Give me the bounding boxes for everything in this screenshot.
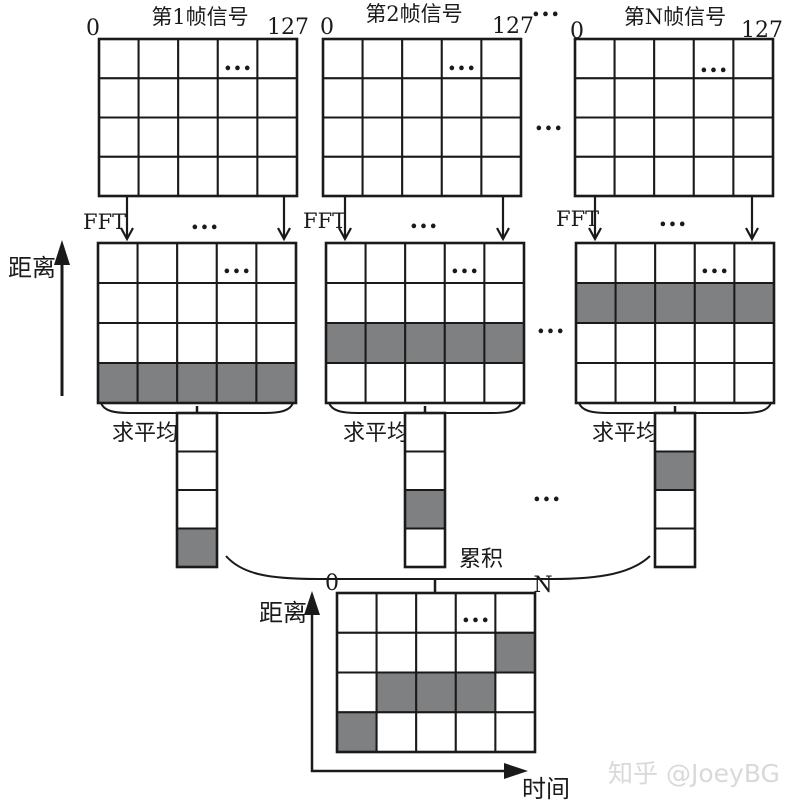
grid-cell: [405, 529, 445, 568]
grid-cell: [323, 157, 363, 196]
range-grid-n: [576, 243, 774, 403]
frame-2-title: 第2帧信号: [365, 2, 462, 26]
grid-cell: [616, 323, 656, 363]
grid-cell: [326, 283, 366, 323]
grid-cell: [366, 243, 406, 283]
grid-cell: [366, 363, 406, 403]
accumulate-label: 累积: [459, 547, 503, 572]
grid-cell: [377, 593, 417, 633]
grid-cell: [733, 39, 773, 78]
grid-cell: [377, 712, 417, 752]
grid-cell: [178, 157, 218, 196]
grid-cell: [366, 283, 406, 323]
grid-cell: [484, 283, 524, 323]
grid-cell: [257, 39, 297, 78]
time-axis-label: 时间: [522, 775, 570, 803]
frame-2-right-tick: 127: [492, 14, 534, 39]
grid-cell: [99, 39, 139, 78]
grid-cell: [217, 363, 257, 403]
grid-cell: [363, 118, 403, 157]
grid-cell: [178, 78, 218, 117]
range-grid-1: [98, 243, 296, 403]
grid-cell: [495, 673, 535, 713]
grid-cell: [366, 323, 406, 363]
ellipsis-frames-top: ...: [531, 0, 560, 22]
avg-vector-n: [655, 413, 695, 567]
range-axis-label-bottom: 距离: [259, 599, 307, 627]
grid-cell: [218, 157, 258, 196]
grid-cell: [377, 633, 417, 673]
grid-cell: [445, 283, 485, 323]
grid-cell: [257, 118, 297, 157]
grid-cell: [217, 283, 257, 323]
grid-cell: [442, 118, 482, 157]
signal-grid-1: [99, 39, 297, 196]
grid-cell: [98, 243, 138, 283]
grid-cell: [695, 283, 735, 323]
avg-vector-2: [405, 413, 445, 567]
grid-cell: [615, 157, 655, 196]
grid-cell: [695, 363, 735, 403]
grid-cell: [177, 452, 217, 491]
grid-cell: [655, 490, 695, 529]
grid-cell: [445, 323, 485, 363]
grid-cell: [139, 39, 179, 78]
frame-1-title: 第1帧信号: [151, 5, 248, 29]
grid-cell: [138, 323, 178, 363]
frame-1-right-tick: 127: [267, 15, 309, 40]
grid-cell: [405, 243, 445, 283]
ellipsis-range-2: ...: [450, 250, 479, 279]
avg-label-2: 求平均: [343, 421, 409, 446]
signal-grid-n: [575, 39, 773, 196]
grid-cell: [654, 78, 694, 117]
grid-cell: [218, 78, 258, 117]
grid-cell: [98, 283, 138, 323]
range-axis-label-left: 距离: [8, 254, 56, 282]
avg-vector-1: [177, 413, 217, 567]
grid-cell: [484, 243, 524, 283]
ellipsis-frames-mid: ...: [534, 107, 563, 136]
grid-cell: [694, 118, 734, 157]
grid-cell: [695, 323, 735, 363]
grid-cell: [99, 157, 139, 196]
grid-cell: [442, 157, 482, 196]
grid-cell: [177, 323, 217, 363]
grid-cell: [363, 39, 403, 78]
grid-cell: [363, 157, 403, 196]
avg-label-1: 求平均: [112, 421, 178, 446]
ellipsis-signal-n: ...: [699, 49, 728, 78]
grid-cell: [575, 118, 615, 157]
grid-cell: [177, 243, 217, 283]
up-arrow-icon: [54, 240, 70, 265]
range-axis-left: [54, 240, 70, 396]
frame-1-left-tick: 0: [86, 16, 100, 41]
ellipsis-range-gap: ...: [536, 310, 565, 339]
grid-cell: [138, 243, 178, 283]
radar-frame-accumulation-diagram: 第1帧信号 第2帧信号 第N帧信号 0 127 0 127 0 127 FFT …: [0, 0, 795, 808]
grid-cell: [575, 78, 615, 117]
grid-cell: [139, 78, 179, 117]
signal-grid-2: [323, 39, 521, 196]
grid-cell: [654, 157, 694, 196]
grid-cell: [615, 118, 655, 157]
grid-cell: [416, 712, 456, 752]
range-grid-2: [326, 243, 524, 403]
grid-cell: [576, 323, 616, 363]
grid-cell: [655, 363, 695, 403]
grid-cell: [655, 413, 695, 452]
grid-cell: [337, 593, 377, 633]
grid-cell: [655, 529, 695, 568]
grid-cell: [456, 633, 496, 673]
grid-cell: [655, 243, 695, 283]
grid-cell: [616, 283, 656, 323]
grid-cell: [177, 490, 217, 529]
grid-cell: [456, 712, 496, 752]
grid-cell: [575, 39, 615, 78]
grid-cell: [405, 283, 445, 323]
grid-cell: [337, 712, 377, 752]
grid-cell: [177, 413, 217, 452]
grid-cell: [654, 39, 694, 78]
grid-cell: [575, 157, 615, 196]
grid-cell: [138, 283, 178, 323]
ellipsis-fft-1: ...: [190, 206, 219, 235]
fft-label-n: FFT: [556, 207, 599, 231]
grid-cell: [218, 118, 258, 157]
grid-cell: [576, 243, 616, 283]
grid-cell: [484, 323, 524, 363]
grid-cell: [456, 673, 496, 713]
grid-cell: [734, 323, 774, 363]
output-grid: [337, 593, 535, 752]
grid-cell: [178, 39, 218, 78]
grid-cell: [405, 452, 445, 491]
grid-cell: [337, 633, 377, 673]
grid-cell: [98, 363, 138, 403]
grid-cell: [217, 323, 257, 363]
grid-cell: [256, 363, 296, 403]
grid-cell: [326, 363, 366, 403]
grid-cell: [139, 157, 179, 196]
grid-cell: [326, 243, 366, 283]
ellipsis-signal-1: ...: [223, 47, 252, 76]
ellipsis-fft-n: ...: [658, 203, 687, 232]
grid-cell: [616, 363, 656, 403]
grid-cell: [256, 323, 296, 363]
grid-cell: [405, 363, 445, 403]
grid-cell: [576, 283, 616, 323]
grid-cell: [733, 78, 773, 117]
grid-cell: [177, 529, 217, 568]
grid-cell: [402, 157, 442, 196]
grid-cell: [615, 78, 655, 117]
grid-cell: [256, 243, 296, 283]
grid-cell: [655, 283, 695, 323]
grid-cell: [138, 363, 178, 403]
grid-cell: [734, 363, 774, 403]
grid-cell: [98, 323, 138, 363]
grid-cell: [402, 118, 442, 157]
grid-cell: [416, 593, 456, 633]
grid-cell: [576, 363, 616, 403]
grid-cell: [416, 633, 456, 673]
grid-cell: [256, 283, 296, 323]
avg-label-n: 求平均: [592, 421, 658, 446]
grid-cell: [177, 283, 217, 323]
grid-cell: [442, 78, 482, 117]
ellipsis-output: ...: [461, 599, 490, 628]
grid-cell: [177, 363, 217, 403]
watermark: 知乎 @JoeyBG: [608, 759, 780, 788]
ellipsis-range-n: ...: [700, 250, 729, 279]
grid-cell: [655, 323, 695, 363]
ellipsis-avg-gap: ...: [532, 478, 561, 507]
grid-cell: [733, 118, 773, 157]
fft-label-1: FFT: [83, 210, 126, 234]
grid-cell: [402, 78, 442, 117]
grid-cell: [323, 78, 363, 117]
grid-cell: [734, 283, 774, 323]
grid-cell: [481, 78, 521, 117]
grid-cell: [495, 593, 535, 633]
frame-2-left-tick: 0: [320, 15, 334, 40]
grid-cell: [257, 78, 297, 117]
grid-cell: [734, 243, 774, 283]
grid-cell: [615, 39, 655, 78]
ellipsis-range-1: ...: [222, 250, 251, 279]
grid-cell: [363, 78, 403, 117]
grid-cell: [694, 78, 734, 117]
grid-cell: [402, 39, 442, 78]
diagram-canvas: 第1帧信号 第2帧信号 第N帧信号 0 127 0 127 0 127 FFT …: [0, 0, 795, 808]
ellipsis-fft-2: ...: [409, 205, 438, 234]
grid-cell: [337, 673, 377, 713]
grid-cell: [416, 673, 456, 713]
grid-cell: [495, 633, 535, 673]
grid-cell: [654, 118, 694, 157]
grid-cell: [139, 118, 179, 157]
ellipsis-signal-2: ...: [447, 47, 476, 76]
grid-cell: [405, 490, 445, 529]
grid-cell: [495, 712, 535, 752]
grid-cell: [178, 118, 218, 157]
grid-cell: [377, 673, 417, 713]
grid-cell: [326, 323, 366, 363]
grid-cell: [481, 39, 521, 78]
grid-cell: [99, 118, 139, 157]
grid-cell: [405, 413, 445, 452]
grid-cell: [484, 363, 524, 403]
grid-cell: [99, 78, 139, 117]
grid-cell: [694, 157, 734, 196]
grid-cell: [481, 118, 521, 157]
grid-cell: [481, 157, 521, 196]
frame-n-title: 第N帧信号: [624, 5, 726, 29]
grid-cell: [655, 452, 695, 491]
grid-cell: [257, 157, 297, 196]
grid-cell: [323, 118, 363, 157]
grid-cell: [405, 323, 445, 363]
grid-cell: [445, 363, 485, 403]
grid-cell: [616, 243, 656, 283]
grid-cell: [323, 39, 363, 78]
grid-cell: [733, 157, 773, 196]
